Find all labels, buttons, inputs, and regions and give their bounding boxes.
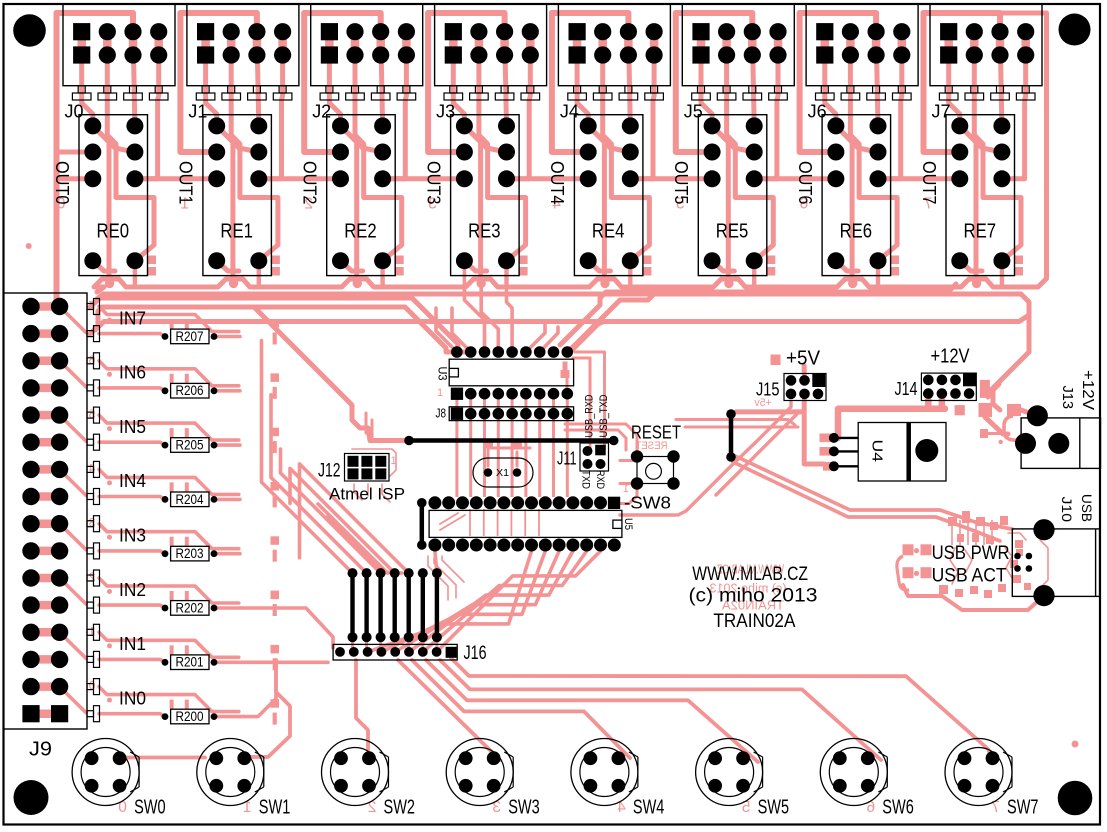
svg-text:OUT2: OUT2	[300, 161, 320, 205]
svg-text:OUT3: OUT3	[423, 161, 443, 205]
svg-text:RE2: RE2	[344, 221, 377, 243]
svg-text:IN7: IN7	[119, 307, 146, 328]
svg-text:SW7: SW7	[1007, 797, 1039, 819]
svg-text:J10: J10	[1059, 497, 1075, 523]
svg-text:SW0: SW0	[134, 797, 166, 819]
svg-text:J2: J2	[312, 102, 331, 122]
svg-text:USB_TXD: USB_TXD	[598, 394, 610, 437]
svg-text:+5V: +5V	[786, 348, 821, 370]
svg-text:1: 1	[391, 455, 397, 467]
svg-text:U4: U4	[869, 440, 886, 463]
svg-text:1: 1	[437, 387, 443, 399]
svg-text:RE1: RE1	[220, 221, 253, 243]
svg-text:OUT6: OUT6	[795, 161, 815, 205]
svg-text:RE6: RE6	[840, 221, 873, 243]
svg-text:USB_RXD: USB_RXD	[584, 394, 596, 437]
svg-text:J6: J6	[808, 102, 827, 122]
svg-text:J9: J9	[29, 739, 52, 761]
svg-text:J3: J3	[436, 102, 455, 122]
svg-text:-SW8: -SW8	[624, 493, 671, 513]
svg-text:Atmel ISP: Atmel ISP	[329, 485, 405, 504]
svg-text:R202: R202	[176, 599, 204, 615]
svg-text:1: 1	[88, 624, 95, 638]
svg-text:SW2: SW2	[384, 797, 416, 819]
svg-text:J1: J1	[188, 102, 207, 122]
svg-text:6: 6	[88, 353, 95, 367]
svg-text:J16: J16	[464, 643, 487, 664]
svg-text:J7: J7	[932, 102, 951, 122]
svg-text:OUT5: OUT5	[671, 161, 691, 205]
svg-text:RE7: RE7	[964, 221, 997, 243]
svg-text:J0: J0	[65, 102, 84, 122]
svg-text:J13: J13	[1059, 386, 1076, 410]
svg-text:USB: USB	[1079, 494, 1095, 522]
svg-text:WWW.MLAB.CZ: WWW.MLAB.CZ	[692, 564, 808, 585]
svg-text:3: 3	[88, 516, 95, 530]
svg-text:IN3: IN3	[119, 525, 146, 546]
svg-text:+12V: +12V	[1079, 370, 1096, 410]
svg-text:U5: U5	[622, 518, 634, 530]
svg-text:J8: J8	[436, 406, 447, 421]
svg-text:(c) miho 2013: (c) miho 2013	[689, 586, 818, 607]
svg-text:R200: R200	[176, 708, 204, 724]
svg-text:IN5: IN5	[119, 416, 146, 437]
svg-text:SW5: SW5	[758, 797, 790, 819]
svg-text:R206: R206	[176, 382, 204, 398]
svg-text:OUT7: OUT7	[919, 161, 939, 205]
svg-text:OUT4: OUT4	[547, 161, 567, 205]
svg-text:RE0: RE0	[97, 221, 130, 243]
svg-text:RESET: RESET	[631, 423, 681, 443]
svg-text:R201: R201	[176, 654, 204, 670]
svg-text:IN1: IN1	[119, 633, 146, 654]
svg-text:RXD: RXD	[594, 470, 606, 489]
svg-text:IN0: IN0	[119, 687, 146, 708]
svg-text:0: 0	[88, 679, 95, 693]
svg-text:R207: R207	[176, 328, 204, 344]
svg-text:RE4: RE4	[592, 221, 625, 243]
svg-text:U3: U3	[436, 367, 450, 381]
svg-text:OUT0: OUT0	[52, 161, 72, 205]
svg-text:X1: X1	[496, 467, 509, 479]
svg-text:SW1: SW1	[259, 797, 291, 819]
svg-text:J12: J12	[318, 461, 341, 482]
svg-text:SW4: SW4	[633, 797, 665, 819]
svg-text:R205: R205	[176, 437, 204, 453]
svg-text:J14: J14	[895, 379, 918, 399]
svg-text:J15: J15	[756, 380, 780, 400]
svg-text:IN6: IN6	[119, 362, 146, 383]
svg-text:RE5: RE5	[716, 221, 749, 243]
svg-text:5: 5	[88, 407, 95, 421]
svg-text:TRAIN02A: TRAIN02A	[713, 611, 795, 632]
svg-text:TXD: TXD	[580, 470, 592, 489]
svg-text:IN2: IN2	[119, 579, 146, 600]
svg-text:4: 4	[88, 461, 95, 475]
svg-text:J11: J11	[557, 449, 577, 469]
svg-text:IN4: IN4	[119, 470, 146, 491]
svg-text:SW3: SW3	[508, 797, 540, 819]
svg-text:R203: R203	[176, 545, 204, 561]
svg-text:7: 7	[88, 299, 95, 313]
svg-text:J5: J5	[684, 102, 703, 122]
svg-text:SW6: SW6	[882, 797, 914, 819]
svg-text:USB PWR: USB PWR	[932, 543, 1010, 564]
svg-text:RE3: RE3	[468, 221, 501, 243]
svg-text:2: 2	[88, 570, 95, 584]
svg-text:J4: J4	[560, 102, 579, 122]
svg-text:USB ACT: USB ACT	[932, 566, 1007, 587]
svg-text:+12V: +12V	[931, 346, 971, 368]
svg-text:OUT1: OUT1	[176, 161, 196, 205]
svg-text:R204: R204	[176, 491, 204, 507]
